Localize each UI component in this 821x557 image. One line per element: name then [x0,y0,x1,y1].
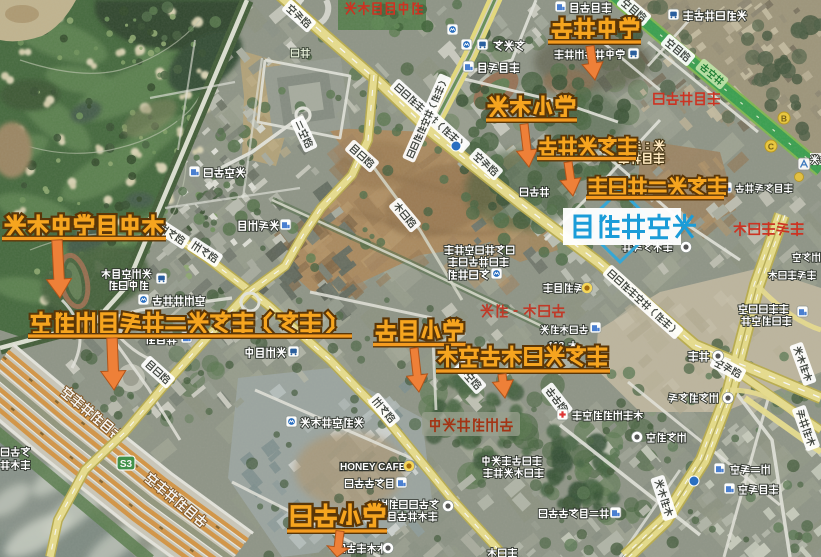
svg-text:HONEY CAFE: HONEY CAFE [340,462,406,473]
